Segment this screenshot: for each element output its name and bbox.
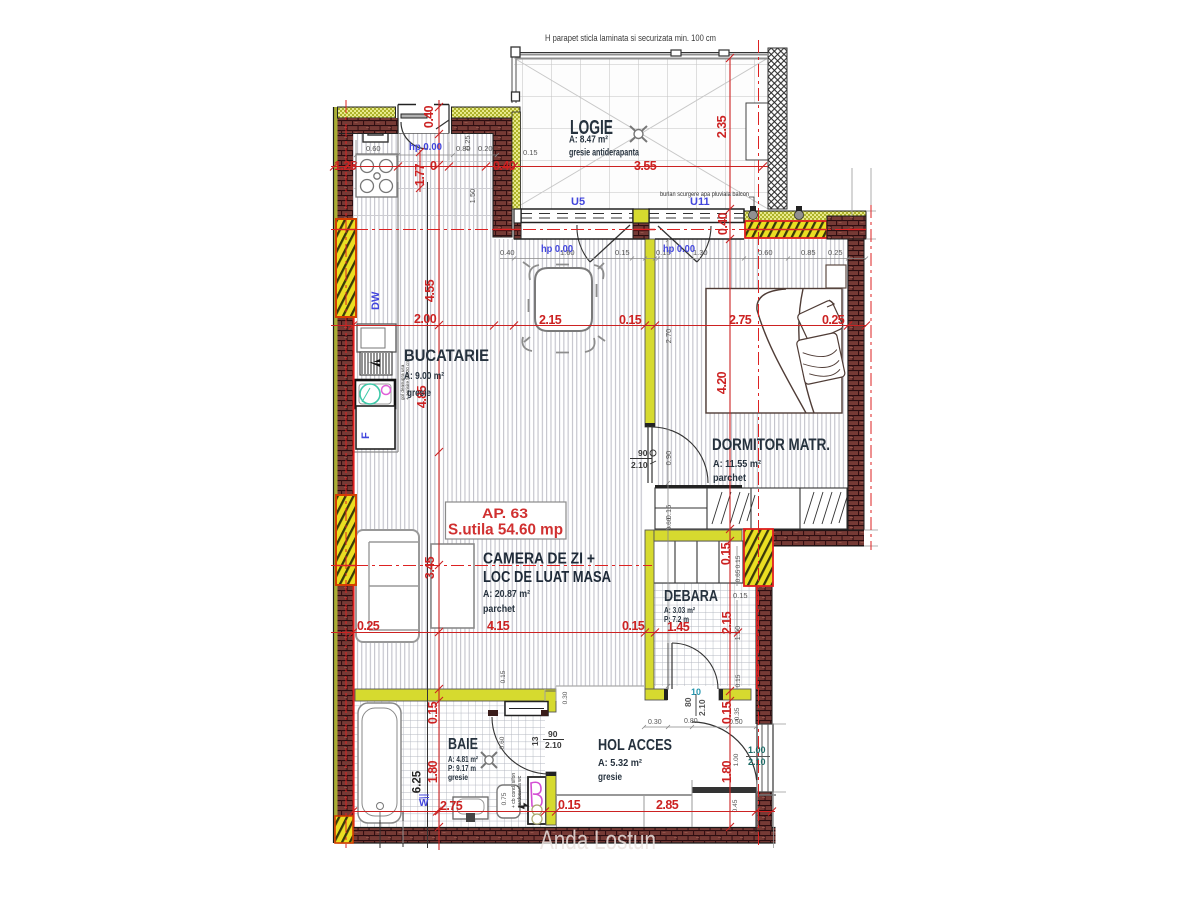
svg-text:2.75: 2.75 xyxy=(440,799,463,813)
svg-text:W: W xyxy=(419,798,429,809)
svg-text:90: 90 xyxy=(638,448,648,458)
svg-text:A: 3.03 m²: A: 3.03 m² xyxy=(664,606,695,615)
svg-text:LOC DE LUAT MASA: LOC DE LUAT MASA xyxy=(483,569,611,586)
svg-text:0.15: 0.15 xyxy=(719,542,733,565)
svg-text:1.00: 1.00 xyxy=(748,745,766,755)
svg-text:BAIE: BAIE xyxy=(448,736,478,753)
svg-text:parchet: parchet xyxy=(713,473,747,484)
svg-text:2.70: 2.70 xyxy=(664,329,673,344)
svg-text:4.20: 4.20 xyxy=(715,371,729,394)
svg-text:U11: U11 xyxy=(690,196,710,208)
svg-text:0.25: 0.25 xyxy=(463,135,472,150)
svg-text:0.65: 0.65 xyxy=(735,569,742,582)
svg-text:0.15: 0.15 xyxy=(720,701,734,724)
svg-text:0.45: 0.45 xyxy=(732,799,739,812)
svg-text:0.15: 0.15 xyxy=(735,674,742,687)
svg-text:0.15: 0.15 xyxy=(523,148,538,157)
svg-text:A: 9.00 m²: A: 9.00 m² xyxy=(404,371,445,382)
svg-text:0.60: 0.60 xyxy=(366,144,381,153)
svg-text:DORMITOR MATR.: DORMITOR MATR. xyxy=(712,436,830,454)
svg-text:pardoseala wc: pardoseala wc xyxy=(517,775,523,808)
svg-text:0.40: 0.40 xyxy=(716,212,730,235)
svg-text:gresie antiderapanta: gresie antiderapanta xyxy=(569,148,639,159)
svg-text:AP. 63: AP. 63 xyxy=(482,505,528,521)
svg-text:H parapet sticla laminata si s: H parapet sticla laminata si securizata … xyxy=(545,33,716,43)
svg-text:90: 90 xyxy=(548,729,558,739)
svg-text:0.40: 0.40 xyxy=(422,105,436,128)
svg-text:0.40: 0.40 xyxy=(493,159,516,173)
svg-text:0.60: 0.60 xyxy=(499,736,506,749)
svg-text:U5: U5 xyxy=(571,196,585,208)
svg-text:0.80: 0.80 xyxy=(684,718,698,725)
svg-text:0.60: 0.60 xyxy=(758,248,773,257)
svg-text:0.30: 0.30 xyxy=(562,691,569,704)
svg-text:parchet: parchet xyxy=(483,604,516,615)
svg-text:1.30: 1.30 xyxy=(693,248,708,257)
svg-text:A: 5.32 m²: A: 5.32 m² xyxy=(598,758,643,769)
svg-text:gresie: gresie xyxy=(448,772,468,782)
svg-text:Anda Lostun: Anda Lostun xyxy=(540,825,656,855)
svg-text:hp 0.00: hp 0.00 xyxy=(541,243,573,255)
svg-text:2.35: 2.35 xyxy=(715,115,729,138)
svg-text:0.15: 0.15 xyxy=(615,248,630,257)
svg-text:P: 7.2 m: P: 7.2 m xyxy=(664,615,689,624)
svg-text:0.30: 0.30 xyxy=(648,719,662,726)
svg-text:0.20: 0.20 xyxy=(478,144,493,153)
svg-text:DEBARA: DEBARA xyxy=(664,588,718,605)
svg-text:gresie: gresie xyxy=(598,772,622,783)
svg-text:2.10: 2.10 xyxy=(697,699,707,716)
svg-text:6.25: 6.25 xyxy=(412,770,424,793)
svg-text:3.45: 3.45 xyxy=(423,556,437,579)
svg-text:2.10: 2.10 xyxy=(545,740,562,750)
svg-text:0.15: 0.15 xyxy=(733,591,748,600)
svg-text:A: 4.81 m²: A: 4.81 m² xyxy=(448,755,478,764)
svg-text:CAMERA DE ZI +: CAMERA DE ZI + xyxy=(483,551,595,568)
svg-text:0.15: 0.15 xyxy=(426,701,440,724)
svg-text:2.85: 2.85 xyxy=(656,798,679,812)
svg-text:0.15: 0.15 xyxy=(622,619,645,633)
svg-text:1.80: 1.80 xyxy=(426,760,440,783)
svg-text:4.55: 4.55 xyxy=(423,279,437,302)
svg-text:80: 80 xyxy=(683,697,693,707)
svg-text:0.25: 0.25 xyxy=(822,313,845,327)
svg-text:0.25: 0.25 xyxy=(828,248,843,257)
svg-text:3.55: 3.55 xyxy=(634,159,657,173)
svg-text:0: 0 xyxy=(430,159,437,173)
svg-text:0.15: 0.15 xyxy=(558,798,581,812)
svg-text:F: F xyxy=(360,432,372,439)
svg-text:1.77: 1.77 xyxy=(413,163,427,186)
svg-text:A: 8.47 m²: A: 8.47 m² xyxy=(569,135,609,146)
svg-text:+ aerisire 50x20 cm: + aerisire 50x20 cm xyxy=(405,360,410,400)
svg-text:1.50: 1.50 xyxy=(468,189,477,204)
svg-text:2.00: 2.00 xyxy=(414,312,437,326)
svg-text:0.25: 0.25 xyxy=(357,619,380,633)
svg-text:2.10: 2.10 xyxy=(631,460,648,470)
svg-text:4.15: 4.15 xyxy=(487,619,510,633)
svg-text:0.15: 0.15 xyxy=(500,670,507,683)
svg-text:0.90: 0.90 xyxy=(664,451,673,466)
svg-text:1.00: 1.00 xyxy=(733,753,740,766)
svg-text:2.15: 2.15 xyxy=(720,611,734,634)
svg-text:2.10: 2.10 xyxy=(748,757,766,767)
svg-text:0.60: 0.60 xyxy=(666,517,673,530)
svg-text:0.35: 0.35 xyxy=(734,707,741,720)
svg-text:BUCATARIE: BUCATARIE xyxy=(404,346,489,365)
svg-text:2.75: 2.75 xyxy=(729,313,752,327)
svg-text:0.15: 0.15 xyxy=(664,505,673,520)
svg-text:1.25: 1.25 xyxy=(334,159,357,173)
svg-text:2.15: 2.15 xyxy=(539,313,562,327)
svg-text:hp 0.00: hp 0.00 xyxy=(663,243,695,255)
svg-text:0.75: 0.75 xyxy=(501,792,508,805)
svg-text:A: 20.87 m²: A: 20.87 m² xyxy=(483,589,531,600)
svg-text:0.85: 0.85 xyxy=(801,248,816,257)
svg-text:0.40: 0.40 xyxy=(500,248,515,257)
svg-text:1.80: 1.80 xyxy=(720,760,734,783)
svg-text:13: 13 xyxy=(530,736,540,746)
svg-text:A: 11.55 m²: A: 11.55 m² xyxy=(713,459,762,470)
svg-text:HOL ACCES: HOL ACCES xyxy=(598,737,672,754)
svg-text:gresie: gresie xyxy=(407,388,431,399)
svg-text:hp 0.00: hp 0.00 xyxy=(409,141,442,153)
svg-text:S.utila 54.60 mp: S.utila 54.60 mp xyxy=(448,522,563,539)
svg-text:0.15: 0.15 xyxy=(619,313,642,327)
svg-text:DW: DW xyxy=(370,291,382,310)
svg-text:0.15: 0.15 xyxy=(735,555,742,568)
